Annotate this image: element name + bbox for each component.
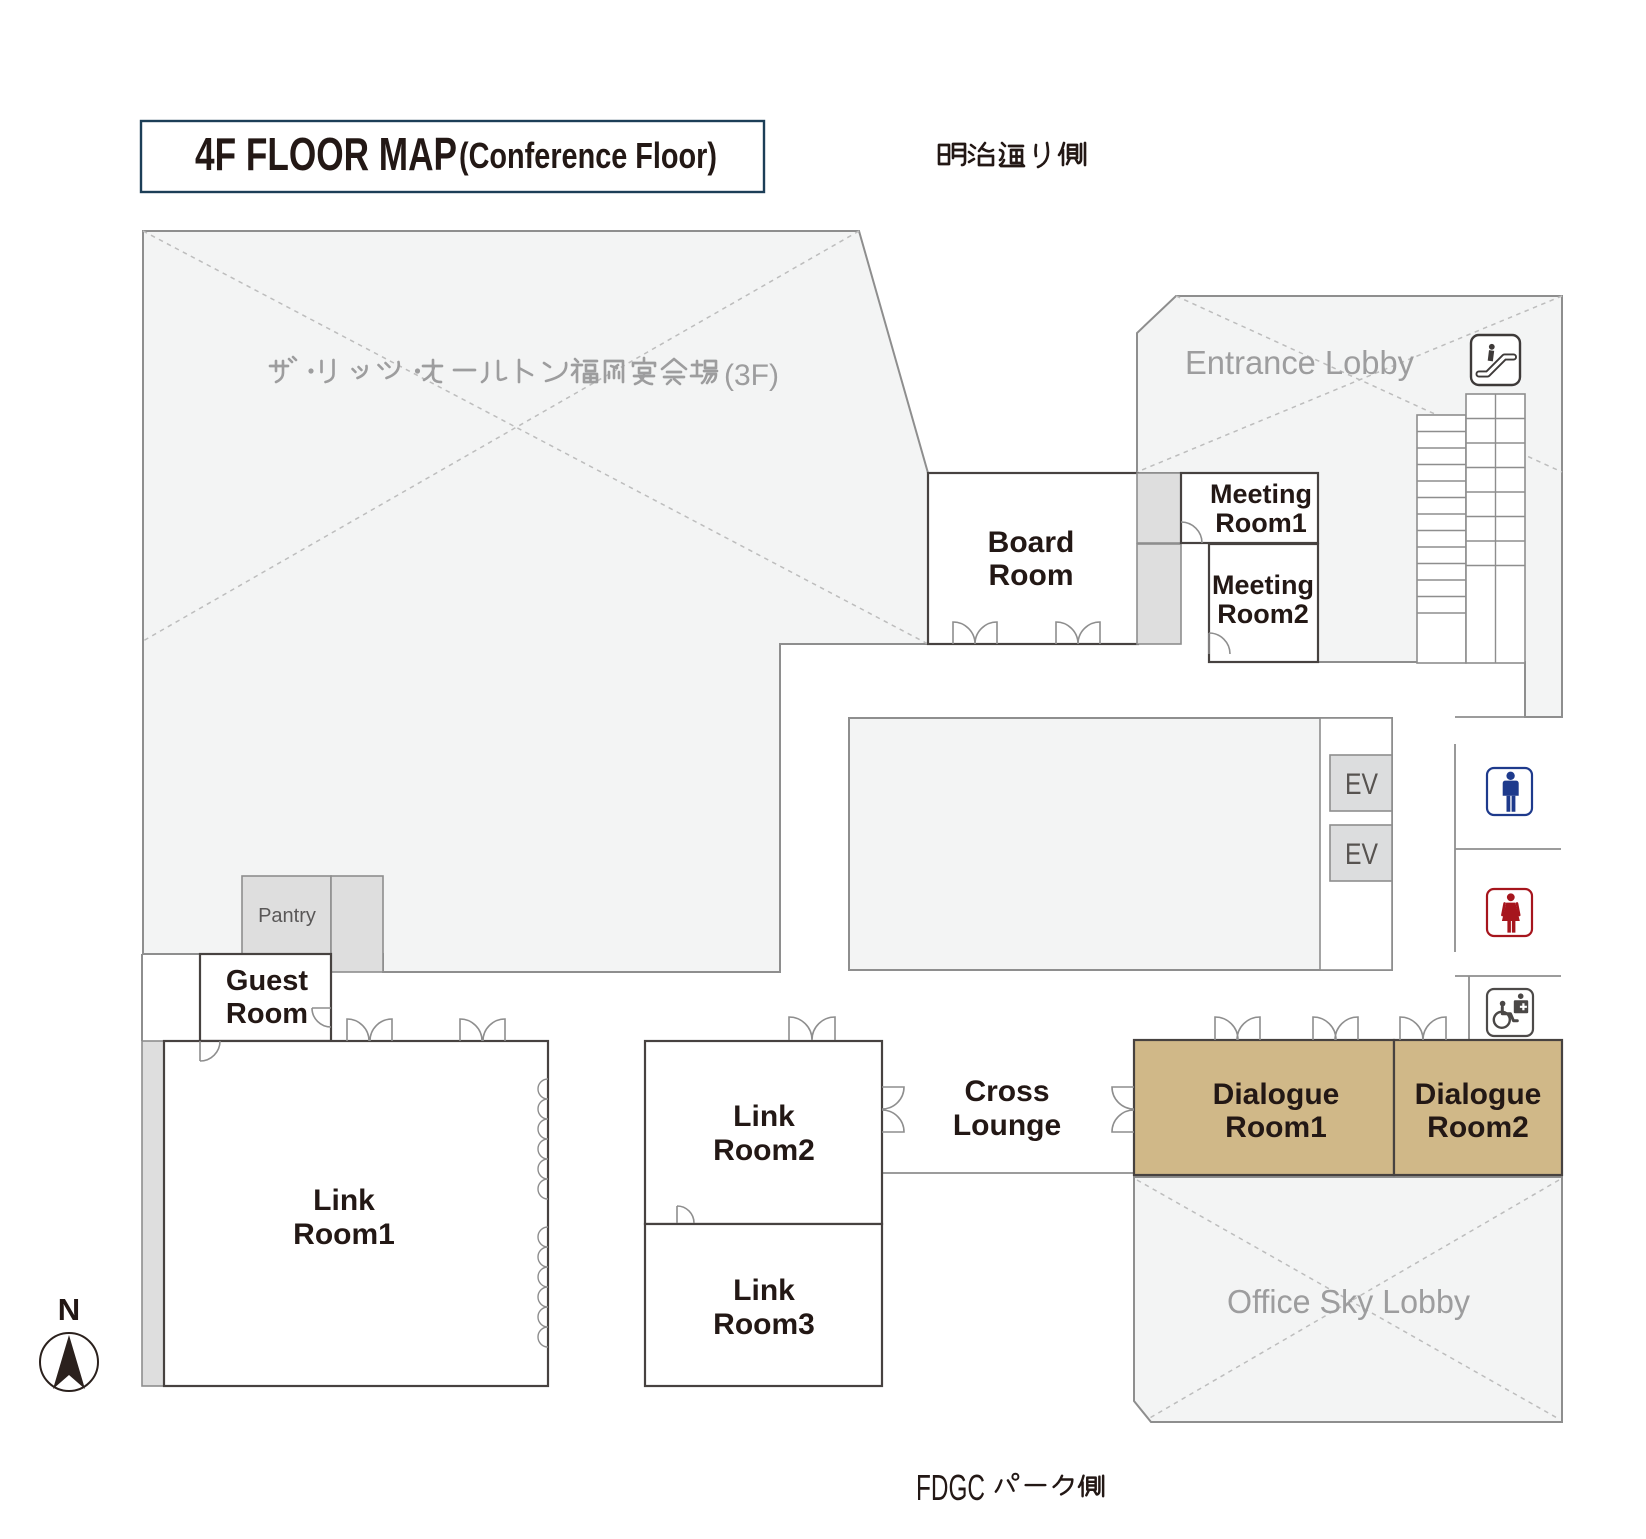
svg-text:Link: Link: [313, 1184, 375, 1217]
svg-text:Room1: Room1: [1215, 508, 1307, 538]
svg-text:EV: EV: [1345, 838, 1378, 871]
svg-text:Cross: Cross: [964, 1075, 1049, 1108]
svg-text:4F FLOOR MAP: 4F FLOOR MAP: [195, 128, 457, 180]
svg-text:N: N: [58, 1292, 80, 1327]
svg-text:Dialogue: Dialogue: [1213, 1078, 1340, 1111]
svg-text:Link: Link: [733, 1100, 795, 1133]
svg-text:Pantry: Pantry: [258, 905, 316, 927]
svg-text:Room3: Room3: [713, 1308, 815, 1341]
svg-text:(Conference Floor): (Conference Floor): [459, 135, 717, 176]
svg-text:Office Sky Lobby: Office Sky Lobby: [1227, 1283, 1470, 1320]
svg-text:Meeting: Meeting: [1210, 479, 1312, 509]
svg-text:EV: EV: [1345, 768, 1378, 801]
svg-text:Dialogue: Dialogue: [1415, 1078, 1542, 1111]
svg-text:Guest: Guest: [226, 965, 309, 997]
svg-text:Meeting: Meeting: [1212, 570, 1314, 600]
svg-text:Room2: Room2: [1217, 599, 1309, 629]
svg-text:Room1: Room1: [293, 1218, 395, 1251]
svg-text:Room: Room: [989, 559, 1074, 592]
svg-text:Entrance Lobby: Entrance Lobby: [1185, 344, 1414, 381]
svg-text:Lounge: Lounge: [953, 1109, 1061, 1142]
svg-text:Room2: Room2: [713, 1134, 815, 1167]
svg-text:Link: Link: [733, 1274, 795, 1307]
svg-text:Room: Room: [226, 998, 308, 1030]
svg-text:Room1: Room1: [1225, 1111, 1327, 1144]
svg-text:(3F): (3F): [724, 359, 779, 392]
svg-text:FDGC: FDGC: [916, 1467, 985, 1508]
svg-text:Room2: Room2: [1427, 1111, 1529, 1144]
svg-text:Board: Board: [988, 526, 1075, 559]
